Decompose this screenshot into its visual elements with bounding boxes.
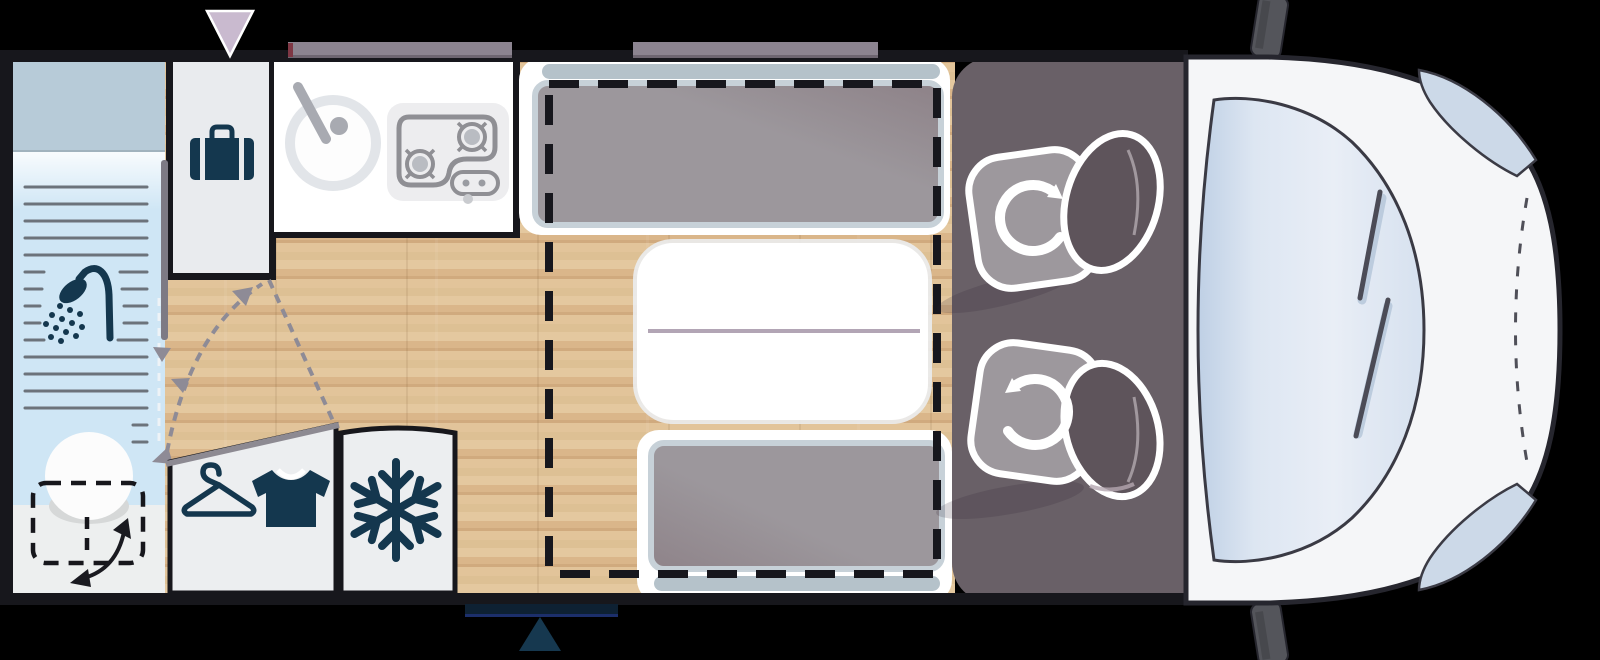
vehicle-front-body — [1186, 57, 1560, 603]
bench-front-cushion — [532, 80, 944, 228]
wing-mirror-left — [1250, 0, 1289, 60]
kitchen-counter — [274, 62, 520, 238]
wall-rear — [0, 50, 13, 605]
windshield — [1198, 98, 1424, 561]
window-over-kitchen — [288, 42, 512, 58]
wiper-lines — [1356, 192, 1388, 436]
wall-top — [0, 50, 1188, 62]
headlight-right — [1419, 484, 1536, 590]
shower-mist — [13, 152, 165, 210]
bathroom-overhead-locker — [13, 62, 165, 152]
bathroom-floor — [13, 505, 165, 593]
wing-mirror-right — [1250, 600, 1289, 660]
window-end-tick — [288, 43, 293, 57]
window-over-dinette — [633, 42, 878, 58]
entrance-arrow — [519, 617, 561, 651]
bench-rear-cushion — [648, 440, 945, 572]
headlight-left — [1419, 70, 1536, 176]
bonnet-line — [1516, 198, 1528, 462]
folding-table — [637, 243, 928, 420]
storage-cabinet — [166, 62, 276, 280]
entry-step — [465, 604, 618, 617]
floorplan-stage — [0, 0, 1600, 660]
bench-rear-headrest — [654, 576, 940, 591]
cab-floor — [952, 57, 1188, 603]
bench-front-headrest — [542, 64, 940, 79]
